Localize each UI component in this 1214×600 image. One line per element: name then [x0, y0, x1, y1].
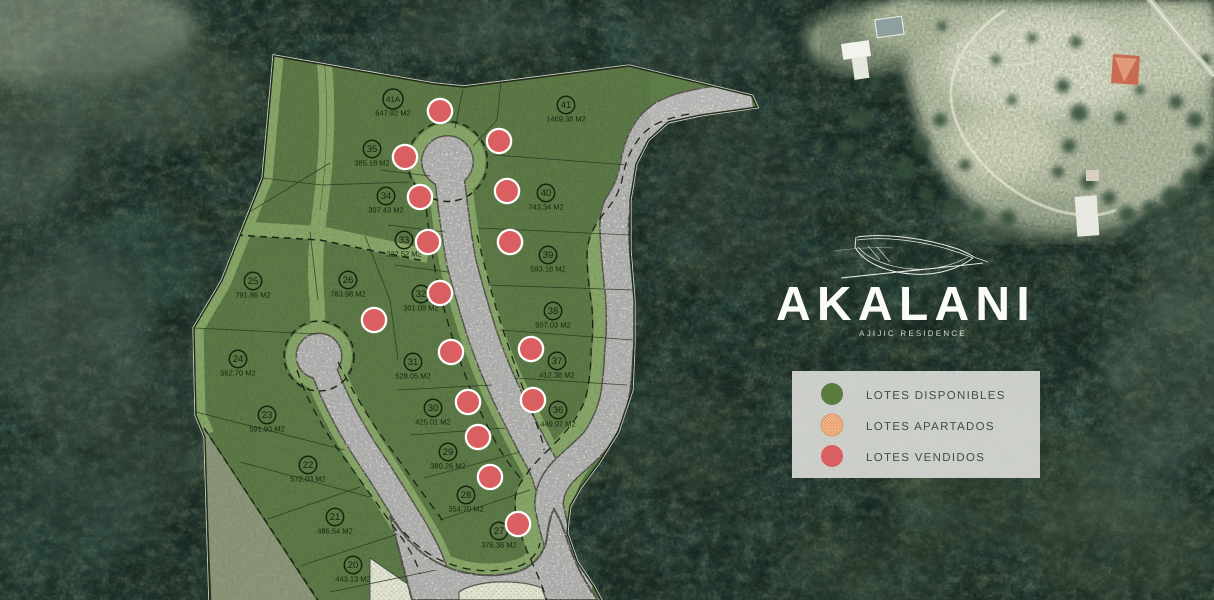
svg-text:562.70 M2: 562.70 M2: [220, 369, 255, 378]
svg-text:528.05 M2: 528.05 M2: [395, 372, 430, 381]
svg-text:507.03 M2: 507.03 M2: [535, 321, 570, 330]
svg-text:35: 35: [367, 144, 378, 155]
svg-text:28: 28: [461, 490, 472, 501]
svg-text:29: 29: [443, 447, 454, 458]
svg-text:376.36 M2: 376.36 M2: [481, 541, 516, 550]
svg-text:37: 37: [552, 356, 563, 367]
svg-text:301.09 M2: 301.09 M2: [403, 304, 438, 313]
svg-text:22: 22: [303, 460, 314, 471]
svg-text:593.18 M2: 593.18 M2: [530, 265, 565, 274]
svg-text:743.34 M2: 743.34 M2: [528, 203, 563, 212]
svg-text:36: 36: [553, 405, 564, 416]
svg-text:791.86 M2: 791.86 M2: [235, 291, 270, 300]
svg-text:25: 25: [248, 276, 259, 287]
svg-text:38: 38: [548, 306, 559, 317]
svg-text:783.98 M2: 783.98 M2: [330, 290, 365, 299]
svg-text:591.93 M2: 591.93 M2: [249, 425, 284, 434]
svg-text:24: 24: [233, 354, 244, 365]
svg-text:41: 41: [561, 100, 572, 111]
svg-text:23: 23: [262, 410, 273, 421]
svg-text:449.97 M2: 449.97 M2: [540, 420, 575, 429]
svg-text:30: 30: [428, 403, 439, 414]
svg-text:354.70 M2: 354.70 M2: [448, 505, 483, 514]
svg-text:LOTES DISPONIBLES: LOTES DISPONIBLES: [866, 390, 1006, 402]
svg-text:307.43 M2: 307.43 M2: [368, 206, 403, 215]
svg-text:32: 32: [416, 289, 427, 300]
svg-text:1469.38 M2: 1469.38 M2: [546, 115, 586, 124]
svg-text:31: 31: [408, 357, 419, 368]
svg-text:26: 26: [343, 275, 354, 286]
svg-text:27: 27: [494, 526, 505, 537]
svg-text:AKALANI: AKALANI: [776, 278, 1036, 331]
svg-text:LOTES VENDIDOS: LOTES VENDIDOS: [866, 452, 985, 464]
svg-text:647.92 M2: 647.92 M2: [375, 109, 410, 118]
svg-text:21: 21: [330, 512, 341, 523]
svg-text:412.38 M2: 412.38 M2: [539, 371, 574, 380]
svg-text:572.03 M2: 572.03 M2: [290, 475, 325, 484]
svg-text:385.18 M2: 385.18 M2: [354, 159, 389, 168]
svg-text:40: 40: [541, 188, 552, 199]
svg-text:33: 33: [399, 235, 410, 246]
svg-text:41A: 41A: [386, 95, 401, 104]
svg-text:20: 20: [348, 560, 359, 571]
svg-text:380.26 M2: 380.26 M2: [430, 462, 465, 471]
svg-text:39: 39: [543, 250, 554, 261]
svg-text:486.54 M2: 486.54 M2: [317, 527, 352, 536]
svg-text:AJIJIC RESIDENCE: AJIJIC RESIDENCE: [859, 329, 967, 338]
svg-text:LOTES APARTADOS: LOTES APARTADOS: [866, 421, 995, 433]
svg-text:322.52 M2: 322.52 M2: [386, 250, 421, 259]
svg-text:34: 34: [381, 191, 392, 202]
svg-text:425.01 M2: 425.01 M2: [415, 418, 450, 427]
svg-text:443.13 M2: 443.13 M2: [335, 575, 370, 584]
